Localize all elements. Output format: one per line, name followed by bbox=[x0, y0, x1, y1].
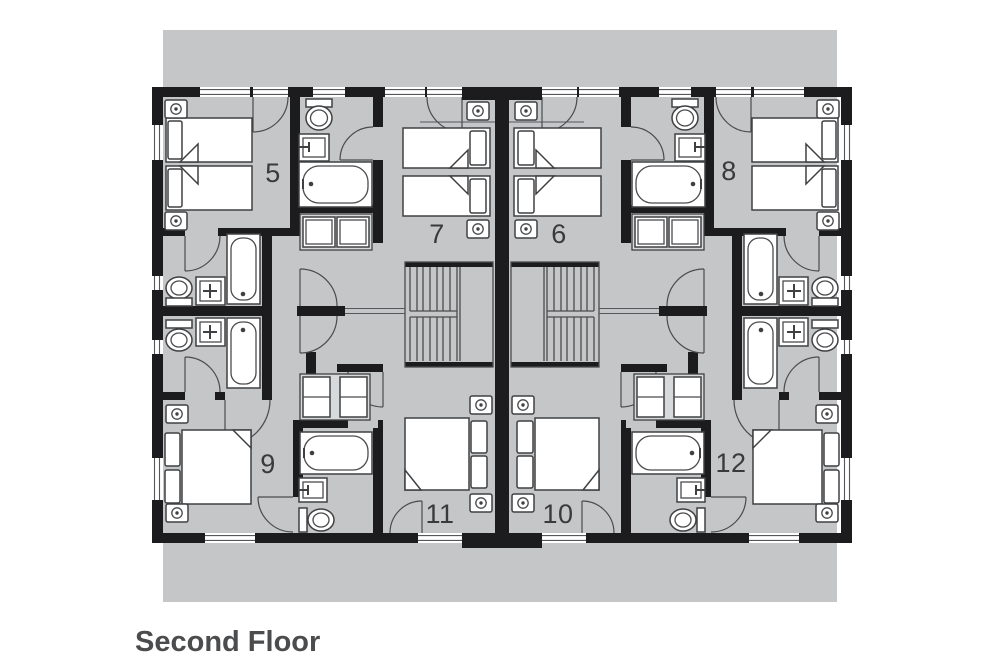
room-number-label: 9 bbox=[260, 449, 276, 479]
room-number-label: 7 bbox=[429, 219, 445, 249]
room-number-label: 5 bbox=[265, 158, 281, 188]
room-number-label: 10 bbox=[542, 499, 573, 529]
room-number-label: 11 bbox=[425, 499, 454, 529]
room-number-label: 6 bbox=[551, 219, 567, 249]
floor-plan-canvas: 5 7 6 8 9 11 10 12 Second Floor bbox=[0, 0, 1000, 667]
room-number-label: 8 bbox=[721, 156, 737, 186]
floor-title: Second Floor bbox=[135, 626, 320, 658]
room-number-label: 12 bbox=[715, 448, 746, 478]
floor-plan-page: 5 7 6 8 9 11 10 12 Second Floor bbox=[0, 0, 1000, 667]
